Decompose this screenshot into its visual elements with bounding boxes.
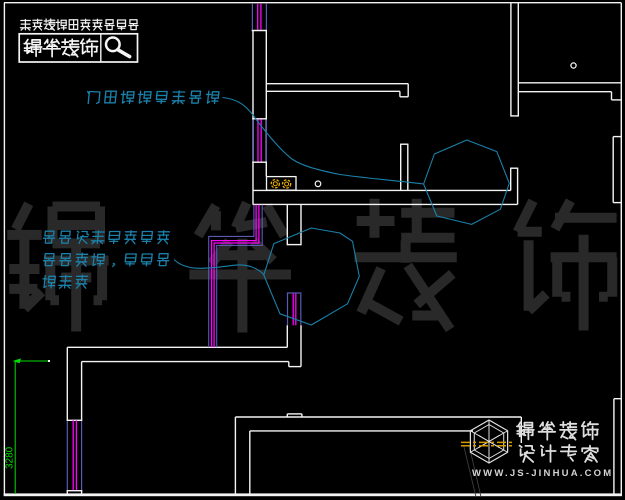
svg-text:3280: 3280 [5, 446, 16, 469]
svg-text:WWW.JS-JINHUA.COM: WWW.JS-JINHUA.COM [472, 468, 613, 479]
